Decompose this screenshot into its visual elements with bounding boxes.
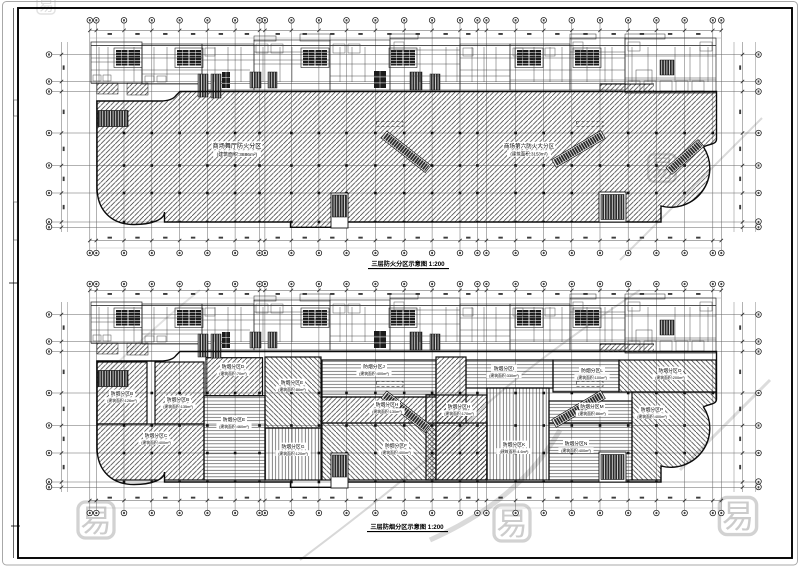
- svg-text:防烟分区D: 防烟分区D: [222, 363, 245, 370]
- svg-text:(建筑面积:460m²): (建筑面积:460m²): [219, 424, 250, 429]
- svg-text:防烟分区P: 防烟分区P: [641, 406, 663, 413]
- svg-text:防烟分区M: 防烟分区M: [580, 403, 603, 410]
- svg-text:防烟分区E: 防烟分区E: [223, 416, 245, 423]
- svg-text:防烟分区N: 防烟分区N: [565, 440, 588, 447]
- svg-text:(建筑面积:70m²): (建筑面积:70m²): [219, 371, 247, 376]
- svg-text:(建筑面积:135m²): (建筑面积:135m²): [163, 404, 194, 409]
- svg-text:(建筑面积:200m²): (建筑面积:200m²): [655, 375, 686, 380]
- svg-text:三层防烟分区示意图 1:200: 三层防烟分区示意图 1:200: [370, 523, 444, 531]
- svg-text:防烟分区L: 防烟分区L: [581, 367, 603, 374]
- svg-text:(建筑面积:130m²): (建筑面积:130m²): [372, 409, 403, 414]
- svg-text:(建筑面积:400m²): (建筑面积:400m²): [637, 414, 668, 419]
- svg-text:(建筑面积:400m²): (建筑面积:400m²): [359, 371, 390, 376]
- svg-text:防烟分区B: 防烟分区B: [167, 396, 189, 403]
- svg-text:(建筑面积:170m²): (建筑面积:170m²): [444, 411, 475, 416]
- svg-text:防烟分区H: 防烟分区H: [376, 401, 399, 408]
- svg-text:防烟分区I: 防烟分区I: [494, 365, 515, 372]
- svg-text:商场第六防火大分区: 商场第六防火大分区: [504, 142, 555, 150]
- svg-text:(建筑面积:126m²): (建筑面积:126m²): [107, 398, 138, 403]
- svg-text:商场舞厅防火分区: 商场舞厅防火分区: [213, 142, 262, 150]
- svg-text:防烟分区J: 防烟分区J: [363, 363, 385, 370]
- svg-text:防烟分区C: 防烟分区C: [145, 432, 168, 439]
- svg-text:防烟分区B: 防烟分区B: [111, 390, 133, 397]
- svg-text:防烟分区G: 防烟分区G: [282, 443, 305, 450]
- svg-text:(建筑面积:330m²): (建筑面积:330m²): [489, 373, 520, 378]
- svg-text:(建筑面积:400m²): (建筑面积:400m²): [141, 440, 172, 445]
- svg-text:防烟分区K: 防烟分区K: [503, 441, 526, 448]
- svg-text:防烟分区O: 防烟分区O: [659, 367, 682, 374]
- svg-text:防烟分区F: 防烟分区F: [385, 442, 407, 449]
- svg-text:(建筑面积:400m²): (建筑面积:400m²): [381, 450, 412, 455]
- svg-text:(建筑面积:400m²): (建筑面积:400m²): [561, 448, 592, 453]
- svg-text:(建筑面积:3886m²): (建筑面积:3886m²): [217, 151, 258, 158]
- svg-text:防烟分区E: 防烟分区E: [281, 379, 303, 386]
- svg-text:(建筑面积:86m²): (建筑面积:86m²): [278, 387, 306, 392]
- svg-text:易: 易: [722, 499, 755, 535]
- svg-text:(建筑面积:120m²): (建筑面积:120m²): [278, 451, 309, 456]
- svg-text:(建筑面积:3153m²): (建筑面积:3153m²): [510, 151, 548, 158]
- svg-text:易: 易: [496, 505, 528, 541]
- svg-text:(建筑面积:86m²): (建筑面积:86m²): [578, 411, 606, 416]
- svg-text:易: 易: [80, 502, 112, 538]
- svg-text:防烟分区H: 防烟分区H: [448, 403, 471, 410]
- svg-text:三层防火分区示意图 1:200: 三层防火分区示意图 1:200: [371, 260, 445, 268]
- svg-text:(建筑面积:4.6m²): (建筑面积:4.6m²): [500, 449, 529, 454]
- svg-text:(建筑面积:100m²): (建筑面积:100m²): [577, 375, 608, 380]
